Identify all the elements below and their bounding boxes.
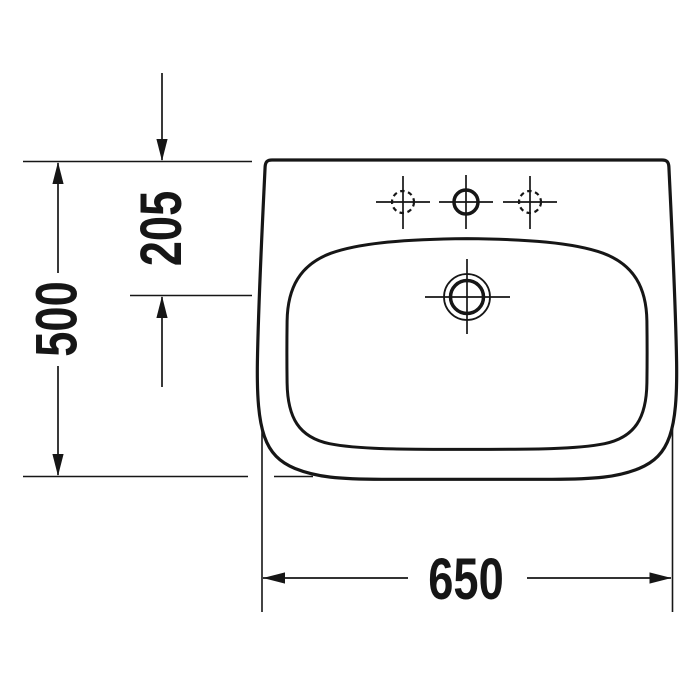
- dimension-label-depth-overall: 500: [25, 281, 90, 356]
- arrowhead-right-icon: [650, 572, 672, 583]
- dimension-width-overall: 650: [262, 425, 673, 612]
- arrowhead-up-icon: [156, 296, 167, 318]
- tap-hole-left-icon: [376, 176, 430, 229]
- dimension-label-depth-to-drain: 205: [130, 191, 195, 266]
- tap-hole-center-icon: [439, 175, 493, 229]
- arrowhead-left-icon: [263, 572, 285, 583]
- arrowhead-down-icon: [156, 139, 167, 161]
- dimension-drawing: 500 205 650: [0, 0, 696, 696]
- arrowhead-down-icon: [52, 454, 63, 476]
- dimension-drawing-canvas: 500 205 650: [0, 0, 696, 696]
- dimension-depth-to-drain: 205: [130, 73, 252, 387]
- arrowhead-up-icon: [52, 162, 63, 184]
- dimension-label-width-overall: 650: [428, 548, 503, 613]
- drain-icon: [425, 259, 510, 334]
- tap-hole-right-icon: [503, 176, 557, 229]
